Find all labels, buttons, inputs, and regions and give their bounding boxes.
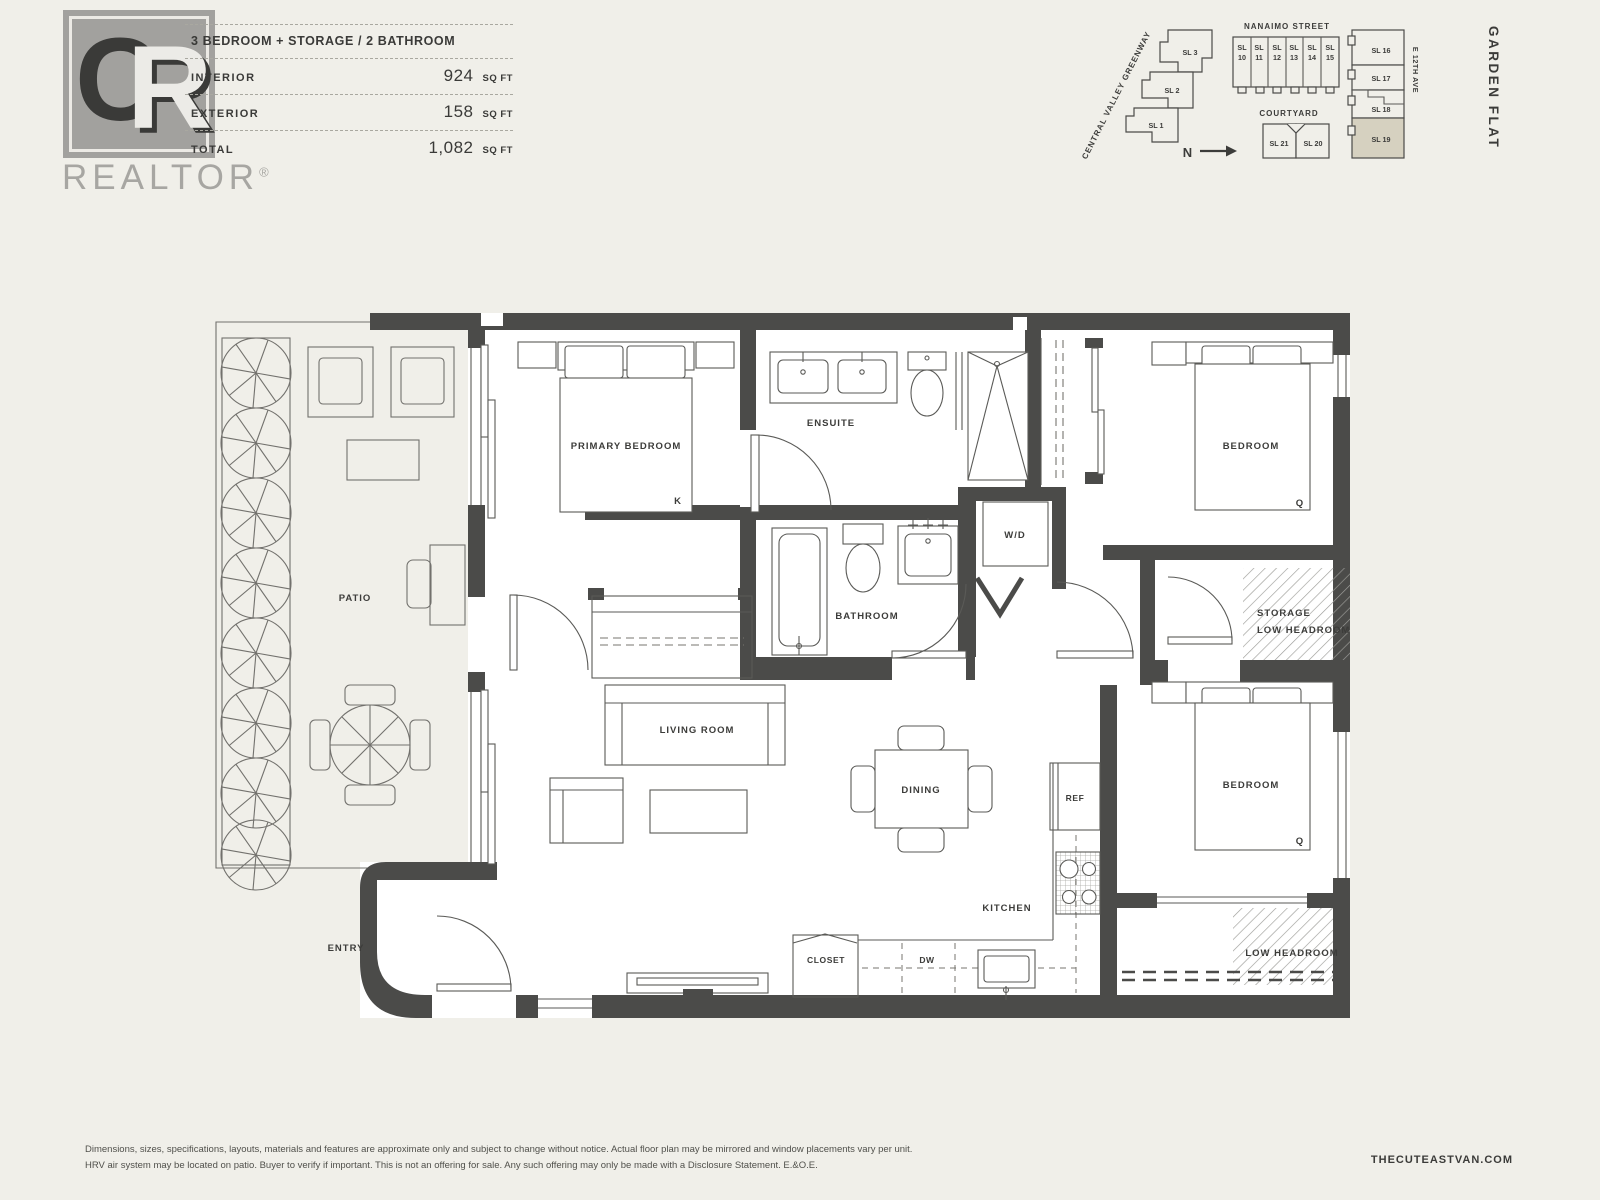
toilet-bowl bbox=[846, 544, 880, 592]
disclaimer-line-2: HRV air system may be located on patio. … bbox=[85, 1158, 912, 1174]
sink bbox=[778, 360, 828, 393]
label-queen-lower: Q bbox=[1296, 836, 1304, 847]
website-url: THECUTEASTVAN.COM bbox=[1371, 1154, 1513, 1166]
svg-text:SL 17: SL 17 bbox=[1371, 74, 1390, 83]
window-panel bbox=[481, 345, 488, 437]
svg-text:SL 1: SL 1 bbox=[1148, 121, 1163, 130]
street-e12th-ave: E 12TH AVE bbox=[1411, 47, 1420, 93]
label-entry: ENTRY bbox=[328, 943, 365, 954]
storage-door bbox=[1168, 637, 1232, 644]
floor-plan-sheet: C R REALTOR® 3 BEDROOM + STORAGE / 2 BAT… bbox=[0, 0, 1600, 1200]
dining-chair bbox=[898, 726, 944, 750]
label-primary-bedroom: PRIMARY BEDROOM bbox=[571, 441, 682, 452]
label-queen-upper: Q bbox=[1296, 498, 1304, 509]
label-dw: DW bbox=[919, 955, 935, 965]
toilet-tank bbox=[843, 524, 883, 544]
courtyard-label: COURTYARD bbox=[1259, 109, 1318, 118]
label-ref: REF bbox=[1066, 793, 1085, 803]
armchair bbox=[550, 778, 623, 843]
label-bathroom: BATHROOM bbox=[835, 611, 898, 622]
pillow bbox=[627, 346, 685, 378]
label-bedroom-upper: BEDROOM bbox=[1223, 441, 1280, 452]
range bbox=[1056, 852, 1100, 914]
svg-text:11: 11 bbox=[1255, 53, 1263, 62]
patio-dining-set bbox=[310, 685, 430, 805]
svg-text:SL 21: SL 21 bbox=[1269, 139, 1288, 148]
shower bbox=[968, 352, 1028, 480]
tv bbox=[683, 989, 713, 995]
label-bedroom-lower: BEDROOM bbox=[1223, 780, 1280, 791]
label-storage-low-headroom: LOW HEADROOM bbox=[1257, 625, 1350, 636]
svg-text:SL 2: SL 2 bbox=[1164, 86, 1179, 95]
svg-text:12: 12 bbox=[1273, 53, 1281, 62]
sliding-door-panel bbox=[1092, 348, 1098, 412]
site-key-map: CENTRAL VALLEY GREENWAY SL 3 SL 2 SL 1 N… bbox=[1080, 22, 1420, 161]
coffee-table bbox=[650, 790, 747, 833]
label-wd: W/D bbox=[1004, 530, 1025, 541]
queen-bed bbox=[1195, 364, 1310, 510]
plan-canvas: CENTRAL VALLEY GREENWAY SL 3 SL 2 SL 1 N… bbox=[0, 0, 1600, 1200]
svg-text:SL: SL bbox=[1237, 43, 1247, 52]
sliding-door-panel bbox=[1098, 410, 1104, 474]
svg-text:SL: SL bbox=[1307, 43, 1317, 52]
svg-text:15: 15 bbox=[1326, 53, 1334, 62]
queen-bed bbox=[1195, 703, 1310, 850]
toilet-tank bbox=[908, 352, 946, 370]
nightstand bbox=[518, 342, 556, 368]
patio-coffee-table bbox=[347, 440, 419, 480]
disclaimer-line-1: Dimensions, sizes, specifications, layou… bbox=[85, 1142, 912, 1158]
label-closet: CLOSET bbox=[807, 955, 845, 965]
north-arrow-icon: N bbox=[1183, 145, 1237, 160]
dining-chair bbox=[898, 828, 944, 852]
dining-chair bbox=[968, 766, 992, 812]
patio-door bbox=[510, 595, 517, 670]
svg-text:SL 20: SL 20 bbox=[1303, 139, 1322, 148]
vanity-sink bbox=[898, 526, 958, 584]
nightstand bbox=[696, 342, 734, 368]
patio-area bbox=[216, 322, 465, 890]
label-dining: DINING bbox=[901, 785, 940, 796]
hall-door bbox=[1057, 651, 1133, 658]
low-headroom-hatch bbox=[1233, 908, 1333, 985]
svg-text:SL 3: SL 3 bbox=[1182, 48, 1197, 57]
label-king: K bbox=[674, 496, 682, 507]
svg-text:SL 18: SL 18 bbox=[1371, 105, 1390, 114]
svg-text:SL: SL bbox=[1289, 43, 1299, 52]
disclaimer: Dimensions, sizes, specifications, layou… bbox=[85, 1142, 912, 1174]
svg-text:SL 19: SL 19 bbox=[1371, 135, 1390, 144]
window-panel bbox=[488, 744, 495, 864]
svg-text:14: 14 bbox=[1308, 53, 1316, 62]
svg-text:SL: SL bbox=[1254, 43, 1264, 52]
label-living-room: LIVING ROOM bbox=[660, 725, 735, 736]
svg-text:13: 13 bbox=[1290, 53, 1298, 62]
label-ensuite: ENSUITE bbox=[807, 418, 855, 429]
ensuite-door bbox=[751, 435, 759, 512]
window-panel bbox=[488, 400, 495, 518]
entry-door bbox=[437, 984, 511, 991]
pillow bbox=[565, 346, 623, 378]
patio-bistro-set bbox=[407, 545, 465, 625]
label-kitchen: KITCHEN bbox=[982, 903, 1031, 914]
unit-strip-sl10-15: SL10 SL11 SL12 SL13 SL14 SL15 bbox=[1233, 37, 1339, 93]
svg-text:SL: SL bbox=[1272, 43, 1282, 52]
window-panel bbox=[481, 690, 488, 792]
street-nanaimo: NANAIMO STREET bbox=[1244, 22, 1330, 31]
nightstand bbox=[1152, 682, 1186, 703]
svg-text:SL: SL bbox=[1325, 43, 1335, 52]
floor-plan: PATIO PRIMARY BEDROOM K ENSUITE BEDROOM … bbox=[216, 313, 1350, 1018]
toilet-bowl bbox=[911, 370, 943, 416]
dining-chair bbox=[851, 766, 875, 812]
svg-text:SL 16: SL 16 bbox=[1371, 46, 1390, 55]
label-patio: PATIO bbox=[339, 593, 372, 604]
patio-armchairs bbox=[308, 347, 454, 417]
bathtub bbox=[772, 528, 827, 655]
nightstand bbox=[1152, 342, 1186, 365]
sink bbox=[838, 360, 886, 393]
unit-column-sl16-19: SL 16 SL 17 SL 18 SL 19 bbox=[1348, 30, 1404, 158]
label-storage: STORAGE bbox=[1257, 608, 1311, 619]
svg-text:N: N bbox=[1183, 145, 1193, 160]
label-low-headroom: LOW HEADROOM bbox=[1245, 948, 1338, 959]
svg-text:10: 10 bbox=[1238, 53, 1246, 62]
